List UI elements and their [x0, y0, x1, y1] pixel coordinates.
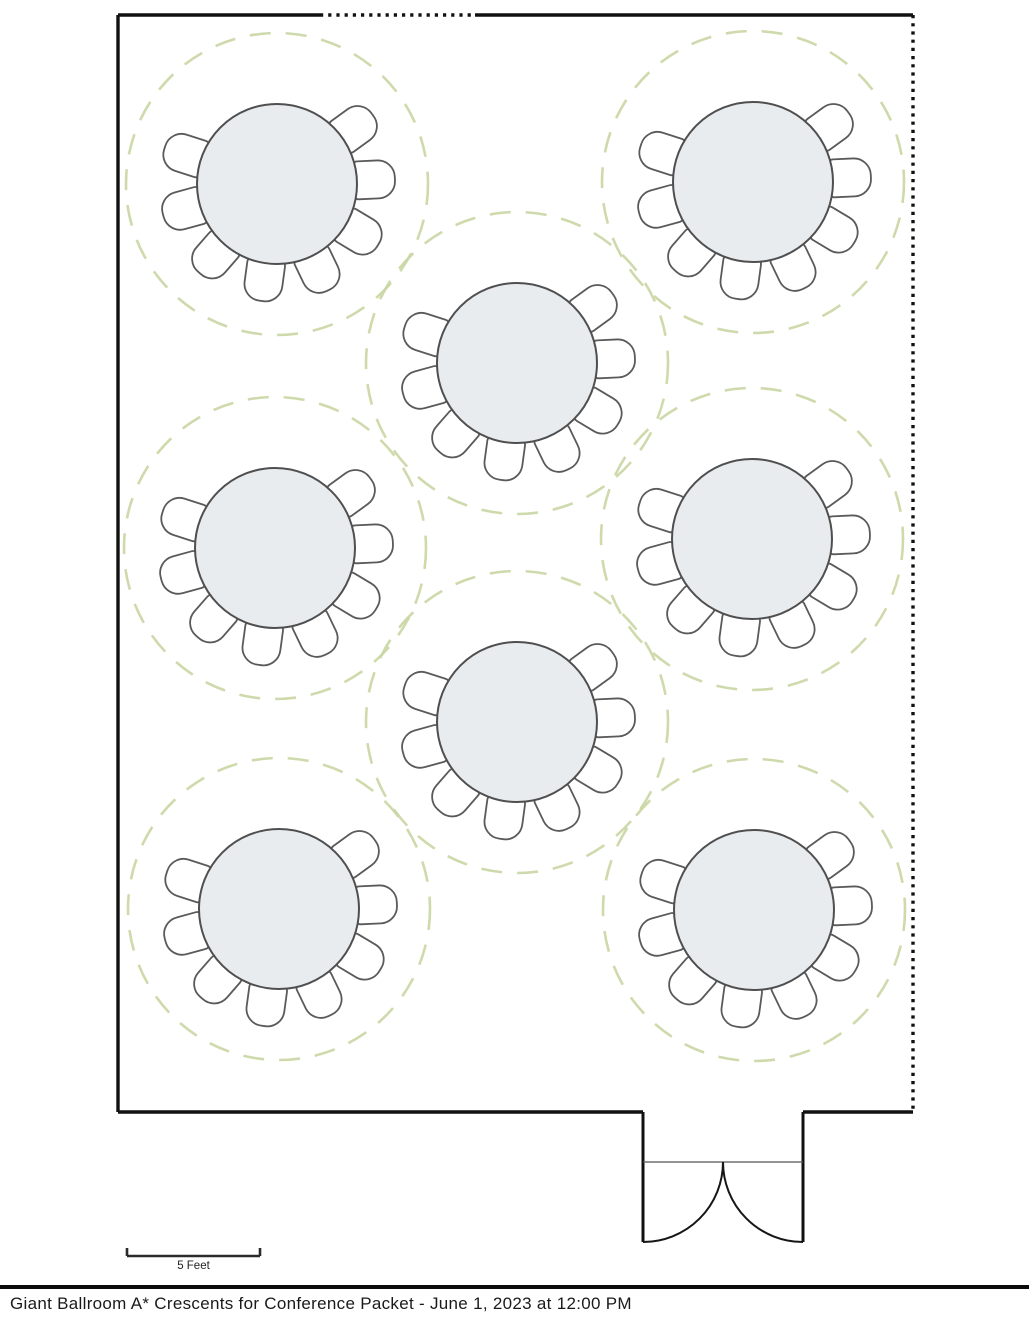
chair [829, 886, 873, 926]
banquet-table-2 [634, 97, 872, 301]
door-swing-arc [723, 1162, 803, 1242]
tabletop [197, 104, 357, 264]
banquet-table-4 [156, 463, 394, 667]
tabletop [437, 642, 597, 802]
chair [354, 885, 398, 925]
tabletop [674, 830, 834, 990]
banquet-table-7 [160, 824, 398, 1028]
chair [828, 158, 872, 198]
banquet-table-5 [633, 454, 871, 658]
tabletop [437, 283, 597, 443]
chair [827, 515, 871, 555]
chair [592, 339, 636, 379]
entrance-double-door [643, 1112, 803, 1242]
footer-rule [0, 1285, 1029, 1289]
door-swing-arc [643, 1162, 723, 1242]
banquet-table-6 [398, 637, 636, 841]
document-title: Giant Ballroom A* Crescents for Conferen… [10, 1294, 632, 1314]
tabletop [673, 102, 833, 262]
banquet-table-8 [635, 825, 873, 1029]
scale-bar-label: 5 Feet [127, 1260, 260, 1272]
chair [352, 160, 396, 200]
tabletop [199, 829, 359, 989]
chair [592, 698, 636, 738]
chair [350, 524, 394, 564]
banquet-table-3 [398, 278, 636, 482]
tabletop [195, 468, 355, 628]
scale-bar [127, 1248, 260, 1256]
banquet-table-1 [158, 99, 396, 303]
tabletop [672, 459, 832, 619]
floor-plan [0, 0, 1029, 1331]
